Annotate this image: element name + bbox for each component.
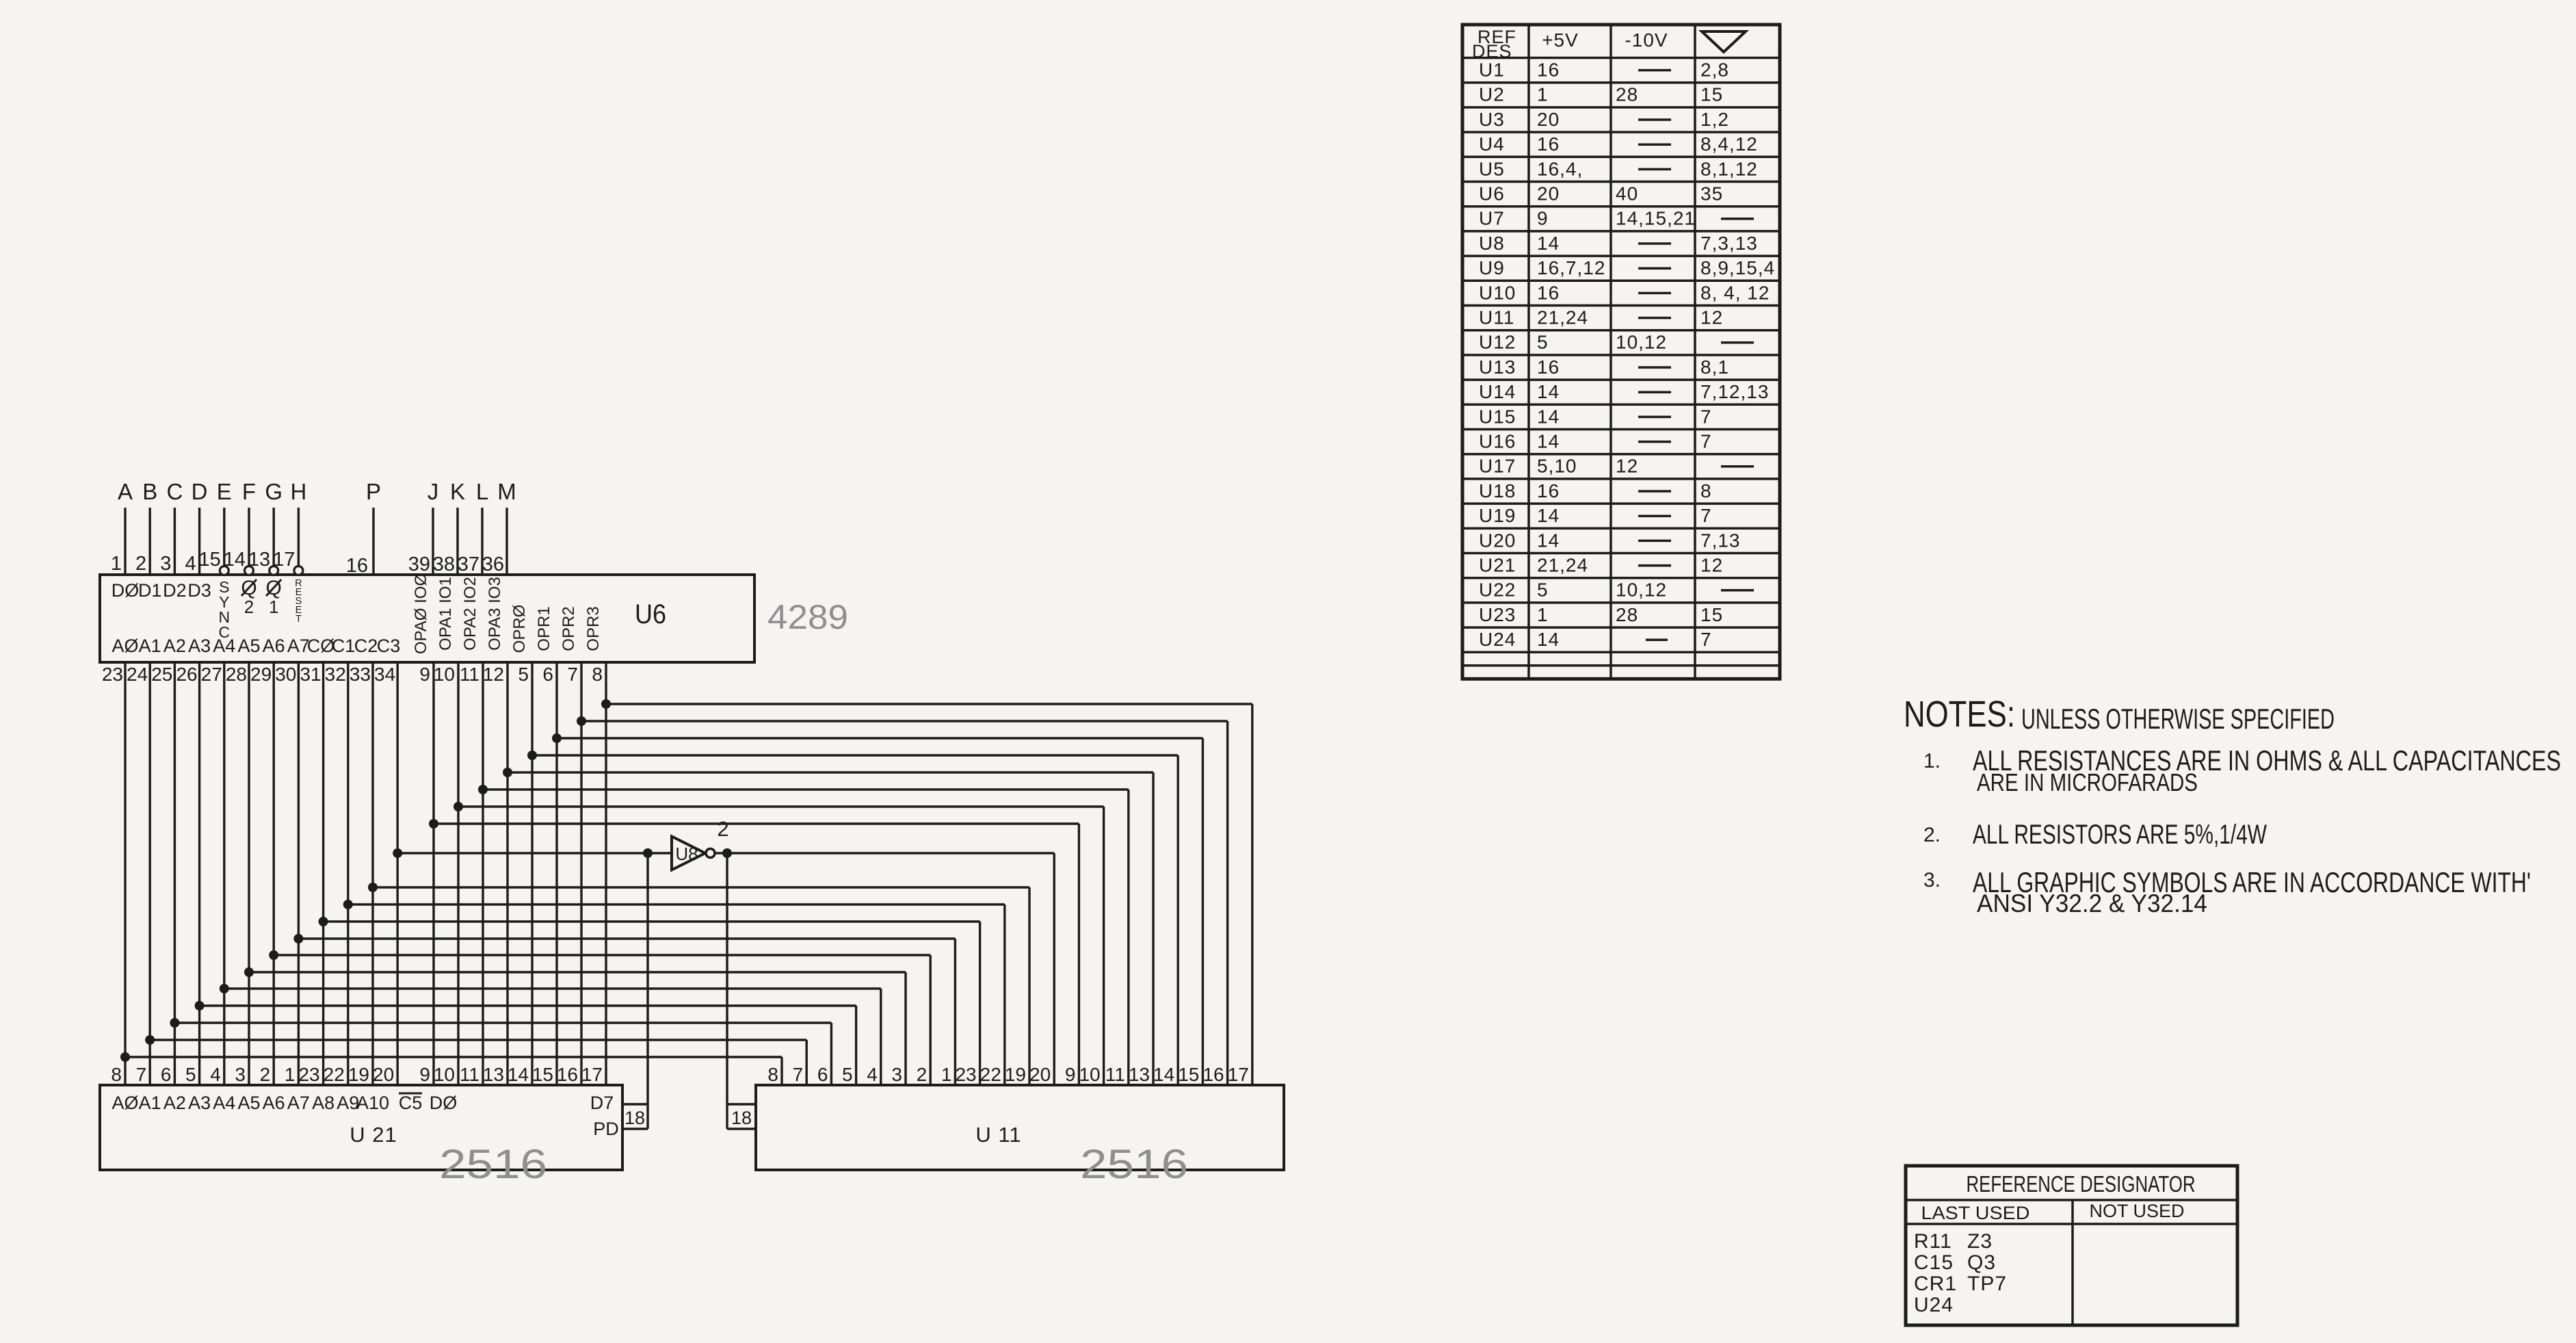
svg-text:16: 16: [1537, 60, 1560, 81]
svg-text:7: 7: [1700, 431, 1712, 452]
svg-text:35: 35: [1700, 183, 1723, 205]
svg-text:A: A: [118, 479, 133, 504]
svg-text:A2: A2: [163, 636, 186, 656]
svg-text:7: 7: [1700, 406, 1712, 427]
svg-text:7: 7: [1700, 629, 1712, 650]
svg-text:14: 14: [224, 549, 246, 571]
svg-text:15: 15: [199, 549, 221, 571]
svg-text:1: 1: [941, 1064, 952, 1085]
svg-text:U19: U19: [1479, 505, 1516, 526]
svg-text:U22: U22: [1479, 579, 1516, 601]
svg-text:9: 9: [1537, 208, 1549, 229]
svg-text:14: 14: [1537, 233, 1560, 254]
svg-text:+5V: +5V: [1542, 29, 1579, 51]
svg-text:ALL RESISTORS ARE 5%,1/4W: ALL RESISTORS ARE 5%,1/4W: [1973, 820, 2267, 850]
svg-text:U11: U11: [1479, 307, 1514, 328]
svg-text:U14: U14: [1479, 381, 1516, 402]
svg-text:16: 16: [557, 1064, 578, 1085]
svg-text:23: 23: [955, 1064, 976, 1085]
svg-text:DØ: DØ: [430, 1093, 458, 1113]
svg-text:A5: A5: [237, 636, 260, 656]
svg-text:T: T: [295, 614, 302, 625]
svg-text:14: 14: [1537, 505, 1560, 526]
svg-text:U18: U18: [1479, 480, 1516, 501]
svg-text:A1: A1: [139, 1093, 161, 1113]
svg-text:8: 8: [767, 1064, 778, 1085]
svg-text:U1: U1: [1479, 60, 1505, 81]
svg-text:4: 4: [867, 1064, 878, 1085]
svg-text:37: 37: [458, 553, 479, 575]
svg-text:A5: A5: [237, 1093, 260, 1113]
svg-text:8: 8: [111, 1064, 122, 1085]
svg-text:13: 13: [1129, 1064, 1150, 1085]
svg-text:34: 34: [374, 664, 395, 685]
svg-text:2: 2: [135, 553, 146, 575]
svg-text:18: 18: [731, 1108, 752, 1128]
svg-text:3: 3: [235, 1064, 246, 1085]
svg-text:A2: A2: [163, 1093, 186, 1113]
svg-text:15: 15: [532, 1064, 553, 1085]
svg-text:U24: U24: [1914, 1294, 1954, 1316]
svg-text:A3: A3: [188, 636, 211, 656]
svg-text:20: 20: [1537, 109, 1560, 130]
svg-text:16,7,12: 16,7,12: [1537, 257, 1605, 278]
svg-text:21,24: 21,24: [1537, 555, 1588, 576]
svg-text:U8: U8: [675, 844, 698, 864]
svg-text:OPR2: OPR2: [560, 606, 578, 651]
svg-text:8: 8: [1700, 480, 1712, 501]
svg-text:15: 15: [1700, 84, 1723, 105]
svg-text:28: 28: [1616, 84, 1638, 105]
svg-text:7: 7: [136, 1064, 147, 1085]
svg-text:38: 38: [433, 553, 455, 575]
svg-text:18: 18: [625, 1108, 645, 1128]
svg-text:3.: 3.: [1923, 869, 1941, 891]
svg-text:CØ: CØ: [307, 636, 335, 656]
svg-text:OPA2 IO2: OPA2 IO2: [461, 577, 479, 651]
svg-text:8,4,12: 8,4,12: [1700, 133, 1758, 155]
svg-text:REFERENCE DESIGNATOR: REFERENCE DESIGNATOR: [1967, 1171, 2196, 1197]
svg-text:U21: U21: [1479, 555, 1516, 576]
svg-text:7,12,13: 7,12,13: [1700, 381, 1769, 402]
svg-text:2: 2: [260, 1064, 271, 1085]
svg-text:1: 1: [1537, 84, 1549, 105]
svg-text:4289: 4289: [767, 598, 848, 636]
svg-text:A10: A10: [356, 1093, 389, 1113]
svg-text:12: 12: [483, 664, 504, 685]
svg-text:5: 5: [185, 1064, 196, 1085]
svg-text:8,1: 8,1: [1700, 356, 1729, 378]
svg-text:M: M: [497, 479, 516, 504]
svg-text:2,8: 2,8: [1700, 60, 1729, 81]
svg-text:2: 2: [244, 597, 254, 617]
svg-text:28: 28: [226, 664, 247, 685]
svg-text:C1: C1: [332, 636, 356, 656]
svg-text:TP7: TP7: [1967, 1273, 2007, 1295]
svg-text:-10V: -10V: [1625, 29, 1668, 51]
svg-text:U7: U7: [1479, 208, 1505, 229]
svg-text:4: 4: [210, 1064, 221, 1085]
svg-text:B: B: [142, 479, 157, 504]
svg-text:40: 40: [1616, 183, 1638, 205]
svg-text:20: 20: [1537, 183, 1560, 205]
svg-text:CR1: CR1: [1914, 1273, 1957, 1295]
svg-text:7,3,13: 7,3,13: [1700, 233, 1758, 254]
svg-text:OPR3: OPR3: [584, 606, 603, 651]
svg-text:19: 19: [1005, 1064, 1026, 1085]
svg-text:U 11: U 11: [975, 1123, 1021, 1147]
svg-text:U2: U2: [1479, 84, 1505, 105]
svg-text:12: 12: [1700, 555, 1723, 576]
svg-text:31: 31: [300, 664, 321, 685]
svg-text:Q3: Q3: [1967, 1251, 1996, 1274]
svg-text:D1: D1: [138, 580, 162, 601]
svg-text:1: 1: [269, 597, 278, 617]
svg-text:D: D: [192, 479, 208, 504]
svg-text:30: 30: [275, 664, 296, 685]
svg-text:5: 5: [518, 664, 529, 685]
svg-text:1.: 1.: [1923, 750, 1941, 772]
svg-text:1: 1: [285, 1064, 295, 1085]
svg-text:3: 3: [160, 553, 171, 575]
svg-text:L: L: [476, 479, 488, 504]
svg-text:36: 36: [482, 553, 504, 575]
svg-text:14: 14: [1153, 1064, 1174, 1085]
svg-text:R11: R11: [1914, 1230, 1952, 1253]
svg-text:DØ: DØ: [111, 580, 140, 601]
svg-text:8: 8: [592, 664, 603, 685]
svg-text:U23: U23: [1479, 604, 1516, 625]
svg-text:11: 11: [460, 664, 479, 685]
svg-text:7: 7: [1700, 505, 1712, 526]
svg-text:13: 13: [248, 549, 270, 571]
svg-text:21,24: 21,24: [1537, 307, 1588, 328]
svg-text:11: 11: [460, 1064, 479, 1085]
svg-text:8,1,12: 8,1,12: [1700, 158, 1758, 179]
svg-text:U24: U24: [1479, 629, 1516, 650]
svg-text:U4: U4: [1479, 133, 1505, 155]
svg-text:14: 14: [508, 1064, 529, 1085]
svg-text:U10: U10: [1479, 282, 1516, 303]
svg-text:D3: D3: [187, 580, 211, 601]
svg-text:P: P: [366, 479, 381, 504]
svg-text:32: 32: [325, 664, 346, 685]
svg-text:A1: A1: [139, 636, 161, 656]
svg-text:DES: DES: [1472, 41, 1512, 62]
svg-text:8,9,15,4: 8,9,15,4: [1700, 257, 1775, 278]
svg-text:U9: U9: [1479, 257, 1505, 278]
svg-text:12: 12: [1616, 456, 1638, 477]
svg-text:U8: U8: [1479, 233, 1505, 254]
svg-text:F: F: [242, 479, 256, 504]
svg-text:2516: 2516: [1080, 1141, 1188, 1187]
svg-text:9: 9: [419, 1064, 430, 1085]
svg-text:14: 14: [1537, 406, 1560, 427]
svg-text:AØ: AØ: [111, 636, 138, 656]
svg-text:U16: U16: [1479, 431, 1516, 452]
svg-text:24: 24: [127, 664, 148, 685]
svg-text:U17: U17: [1479, 456, 1516, 477]
svg-text:39: 39: [408, 553, 430, 575]
svg-text:OPA1 IO1: OPA1 IO1: [436, 577, 455, 651]
svg-text:28: 28: [1616, 604, 1638, 625]
svg-text:OPR1: OPR1: [535, 606, 553, 651]
svg-text:7,13: 7,13: [1700, 530, 1741, 551]
svg-text:14: 14: [1537, 530, 1560, 551]
svg-text:E: E: [217, 479, 232, 504]
svg-text:10,12: 10,12: [1616, 579, 1667, 601]
svg-text:19: 19: [348, 1064, 369, 1085]
svg-text:A6: A6: [263, 1093, 285, 1113]
svg-text:D2: D2: [163, 580, 187, 601]
svg-text:11: 11: [1105, 1064, 1125, 1085]
svg-text:A4: A4: [213, 1093, 235, 1113]
svg-text:A4: A4: [213, 636, 235, 656]
svg-text:20: 20: [373, 1064, 394, 1085]
svg-text:15: 15: [1178, 1064, 1199, 1085]
svg-text:16: 16: [346, 555, 368, 577]
svg-text:1: 1: [111, 553, 122, 575]
svg-text:H: H: [290, 479, 306, 504]
svg-text:6: 6: [817, 1064, 828, 1085]
svg-text:12: 12: [1700, 307, 1723, 328]
svg-text:23: 23: [102, 664, 123, 685]
svg-text:6: 6: [161, 1064, 172, 1085]
svg-text:14: 14: [1537, 629, 1560, 650]
svg-text:OPA3 IO3: OPA3 IO3: [486, 577, 504, 651]
svg-text:PD: PD: [593, 1119, 619, 1139]
svg-text:OPRØ: OPRØ: [510, 605, 529, 653]
svg-text:13: 13: [483, 1064, 504, 1085]
svg-text:10: 10: [434, 1064, 455, 1085]
svg-text:20: 20: [1029, 1064, 1051, 1085]
svg-text:A6: A6: [263, 636, 285, 656]
svg-text:14: 14: [1537, 381, 1560, 402]
svg-text:10: 10: [434, 664, 455, 685]
svg-text:2: 2: [717, 817, 728, 841]
svg-text:2: 2: [917, 1064, 928, 1085]
svg-text:8, 4, 12: 8, 4, 12: [1700, 282, 1770, 303]
svg-text:6: 6: [542, 664, 553, 685]
svg-text:16: 16: [1537, 356, 1560, 378]
svg-text:4: 4: [185, 553, 196, 575]
svg-text:33: 33: [350, 664, 371, 685]
svg-text:C3: C3: [377, 636, 401, 656]
svg-text:5: 5: [842, 1064, 853, 1085]
svg-text:5: 5: [1537, 332, 1549, 353]
svg-text:10: 10: [1079, 1064, 1100, 1085]
svg-text:25: 25: [151, 664, 172, 685]
svg-text:22: 22: [324, 1064, 345, 1085]
svg-text:K: K: [450, 479, 465, 504]
svg-text:C15: C15: [1914, 1251, 1954, 1274]
svg-text:ARE IN MICROFARADS: ARE IN MICROFARADS: [1977, 768, 2198, 796]
svg-text:U3: U3: [1479, 109, 1505, 130]
svg-text:7: 7: [567, 664, 578, 685]
svg-text:2516: 2516: [439, 1141, 547, 1187]
svg-text:U15: U15: [1479, 406, 1516, 427]
svg-text:9: 9: [419, 664, 430, 685]
svg-text:26: 26: [176, 664, 197, 685]
svg-text:OPAØ IOØ: OPAØ IOØ: [412, 573, 430, 654]
svg-text:3: 3: [891, 1064, 902, 1085]
svg-text:14,15,21: 14,15,21: [1616, 208, 1696, 229]
svg-text:5: 5: [1537, 579, 1549, 601]
svg-text:C2: C2: [354, 636, 378, 656]
svg-text:C: C: [166, 479, 183, 504]
svg-text:16: 16: [1537, 133, 1560, 155]
svg-text:AØ: AØ: [111, 1093, 138, 1113]
svg-text:5,10: 5,10: [1537, 456, 1577, 477]
svg-text:23: 23: [298, 1064, 319, 1085]
svg-text:A3: A3: [188, 1093, 211, 1113]
svg-text:J: J: [428, 479, 439, 504]
svg-text:7: 7: [793, 1064, 804, 1085]
svg-text:17: 17: [273, 549, 295, 571]
svg-text:16: 16: [1537, 282, 1560, 303]
svg-text:16: 16: [1202, 1064, 1224, 1085]
svg-text:NOTES:: NOTES:: [1904, 694, 2015, 735]
svg-text:U20: U20: [1479, 530, 1516, 551]
svg-text:U5: U5: [1479, 158, 1505, 179]
svg-text:U6: U6: [635, 599, 666, 629]
svg-text:C5: C5: [399, 1093, 423, 1113]
svg-text:29: 29: [250, 664, 272, 685]
svg-text:16,4,: 16,4,: [1537, 158, 1583, 179]
svg-text:17: 17: [581, 1064, 603, 1085]
svg-text:UNLESS OTHERWISE SPECIFIED: UNLESS OTHERWISE SPECIFIED: [2021, 703, 2335, 735]
svg-text:G: G: [265, 479, 282, 504]
svg-text:U6: U6: [1479, 183, 1505, 205]
svg-text:9: 9: [1065, 1064, 1076, 1085]
svg-text:17: 17: [1228, 1064, 1249, 1085]
svg-text:1: 1: [1537, 604, 1549, 625]
svg-text:27: 27: [201, 664, 222, 685]
svg-text:A7: A7: [287, 1093, 310, 1113]
svg-text:ANSI Y32.2 & Y32.14: ANSI Y32.2 & Y32.14: [1977, 889, 2207, 917]
svg-text:Z3: Z3: [1967, 1230, 1993, 1253]
svg-text:14: 14: [1537, 431, 1560, 452]
svg-text:1,2: 1,2: [1700, 109, 1729, 130]
svg-text:2.: 2.: [1923, 824, 1941, 846]
svg-text:U 21: U 21: [350, 1123, 397, 1147]
svg-text:U13: U13: [1479, 356, 1516, 378]
svg-text:16: 16: [1537, 480, 1560, 501]
svg-text:22: 22: [980, 1064, 1001, 1085]
svg-text:A8: A8: [312, 1093, 334, 1113]
svg-text:15: 15: [1700, 604, 1723, 625]
svg-text:D7: D7: [590, 1093, 614, 1113]
svg-text:NOT USED: NOT USED: [2090, 1201, 2185, 1221]
svg-text:LAST USED: LAST USED: [1921, 1203, 2030, 1223]
svg-text:10,12: 10,12: [1616, 332, 1667, 353]
svg-text:U12: U12: [1479, 332, 1516, 353]
